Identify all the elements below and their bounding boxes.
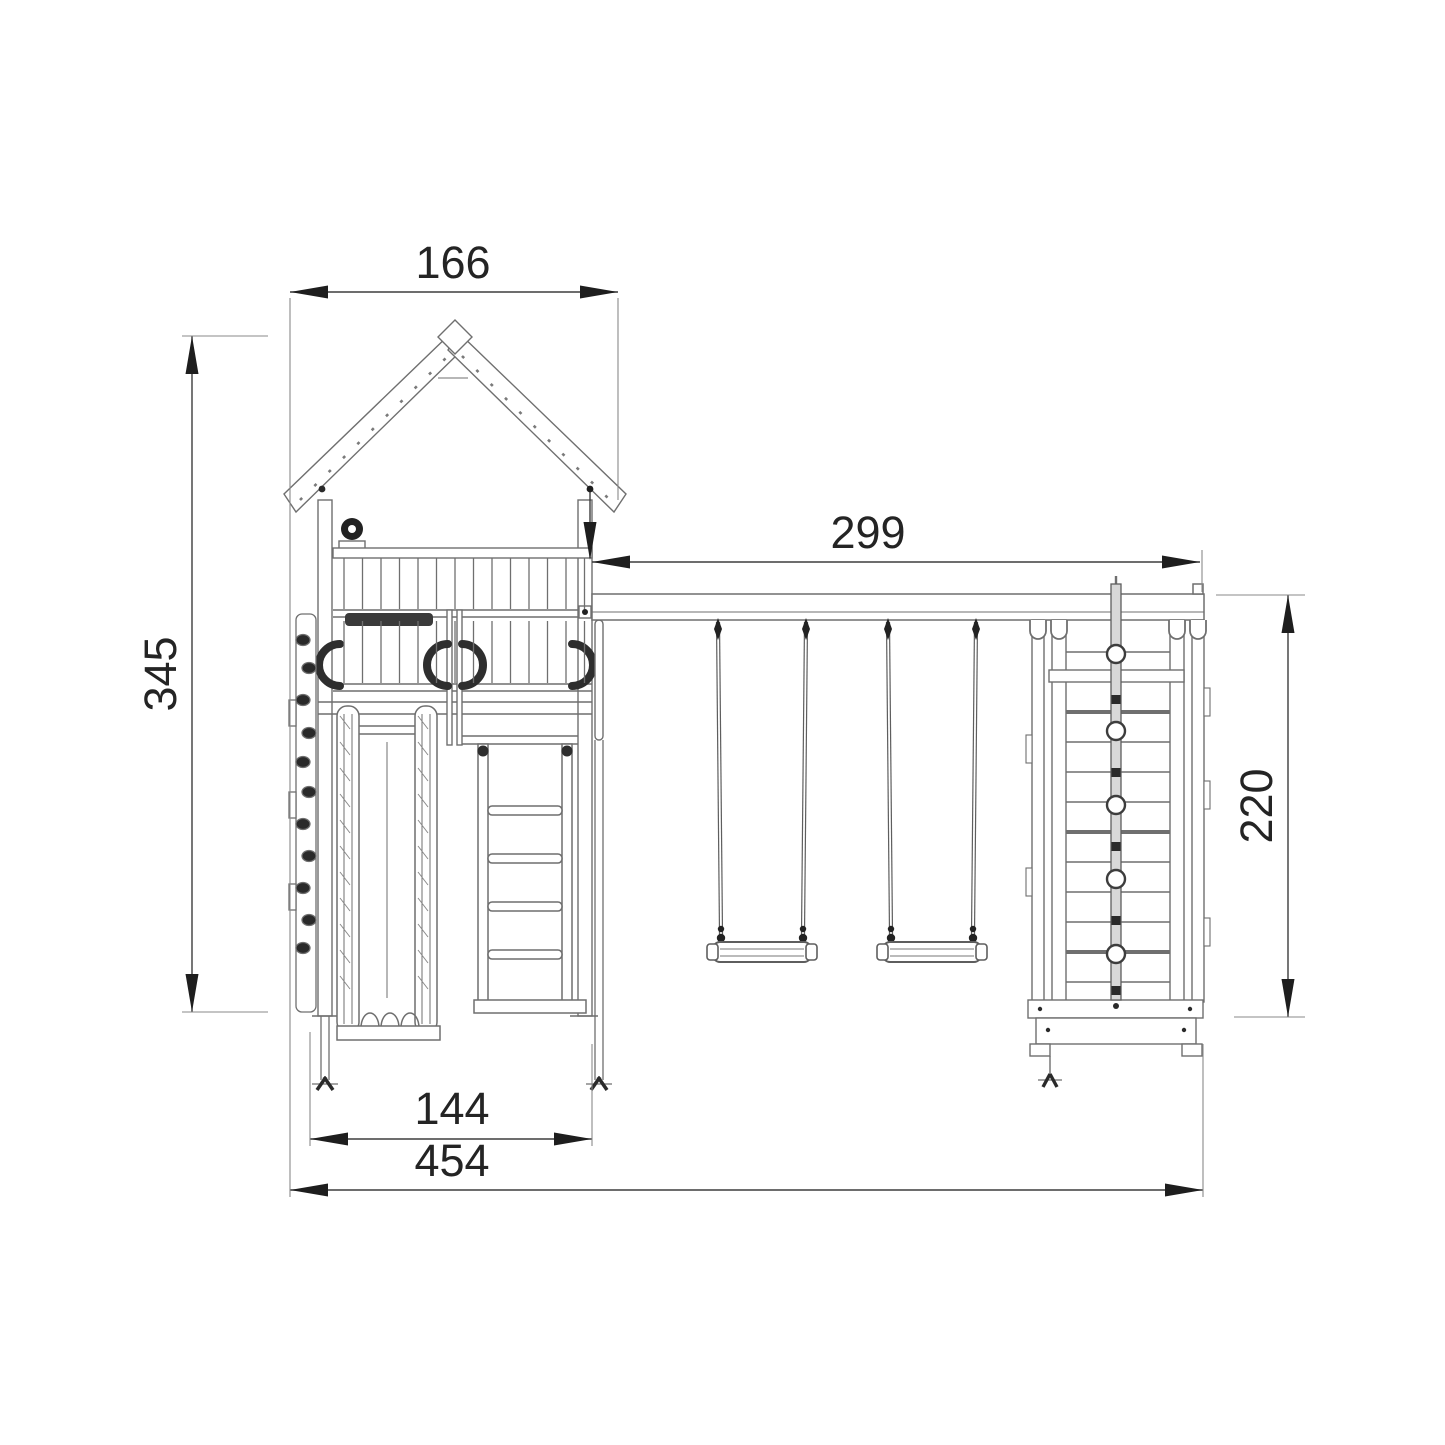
ladder-rail-left [478, 744, 488, 1012]
base-screw [1046, 1028, 1050, 1032]
dim-text-frame-height: 220 [1231, 768, 1282, 843]
base-screw [1188, 1007, 1192, 1011]
roof-bolt [319, 486, 326, 493]
swing-seat [713, 942, 811, 962]
ladder-rung [488, 806, 562, 815]
swing-shackle [888, 926, 894, 932]
swing-seat [883, 942, 981, 962]
drawing-canvas: 166 345 299 220 [0, 0, 1445, 1445]
swing-seat-cap [806, 944, 817, 960]
ref-dot [587, 486, 594, 493]
handrail [333, 548, 592, 558]
dim-text-overall-width: 454 [414, 1135, 489, 1186]
ladder-base-plate [474, 1000, 586, 1013]
center-divider-right [457, 610, 462, 745]
beam-bracket [1051, 620, 1067, 639]
drawing-page: 166 345 299 220 [0, 0, 1445, 1445]
climbing-hold [302, 851, 316, 862]
frame-side-cleat [1204, 688, 1210, 716]
pole-connector [1112, 768, 1121, 777]
beam-bracket [1030, 620, 1046, 639]
beam-bracket [1169, 620, 1185, 639]
swing-seat-cap [976, 944, 987, 960]
swing-shackle [718, 926, 724, 932]
base-center-bolt [1113, 1003, 1119, 1009]
frame-side-cleat [1026, 868, 1032, 896]
frame-foot-left [1030, 1044, 1050, 1056]
swing-shackle [970, 926, 976, 932]
dim-text-roof-width: 166 [415, 237, 490, 288]
frame-side-cleat [1204, 781, 1210, 809]
slide-base-bar [337, 1026, 440, 1040]
center-divider-left [447, 610, 452, 745]
climbing-hold [296, 819, 310, 830]
beam-bracket [1190, 620, 1206, 639]
swing-seat-cap [877, 944, 888, 960]
climbing-hold [302, 663, 316, 674]
swing-shackle [887, 934, 895, 942]
climbing-hold [296, 757, 310, 768]
pole-grip [1107, 870, 1125, 888]
frame-base-lower-board [1036, 1018, 1196, 1044]
dim-text-beam-length: 299 [830, 507, 905, 558]
pole-grip [1107, 945, 1125, 963]
frame-post-outer-right [1192, 620, 1204, 1002]
dim-text-tower-width: 144 [414, 1083, 489, 1134]
pole-grip [1107, 796, 1125, 814]
steering-knob-hub [348, 525, 356, 533]
ladder-rung [488, 854, 562, 863]
climbing-hold [302, 728, 316, 739]
ladder-hook-right [562, 746, 573, 757]
climbing-hold [296, 635, 310, 646]
beam-support-panel [595, 620, 603, 740]
swing-shackle [799, 934, 807, 942]
swing-seat-cap [707, 944, 718, 960]
climbing-hold [296, 883, 310, 894]
pole-connector [1112, 695, 1121, 704]
paper-background [0, 0, 1445, 1445]
base-screw [1038, 1007, 1042, 1011]
frame-side-cleat [1026, 735, 1032, 763]
pole-grip [1107, 645, 1125, 663]
frame-foot-right [1182, 1044, 1202, 1056]
base-screw [1182, 1028, 1186, 1032]
grab-bar [345, 613, 433, 626]
swing-shackle [969, 934, 977, 942]
pole-connector [1112, 986, 1121, 995]
ladder-rung [488, 902, 562, 911]
frame-base-top-board [1028, 1000, 1203, 1018]
ladder-rail-right [562, 744, 572, 1012]
beam-bolt [582, 609, 588, 615]
climbing-hold [302, 915, 316, 926]
pole-grip [1107, 722, 1125, 740]
ladder-hook-left [478, 746, 489, 757]
climbing-hold [296, 943, 310, 954]
swing-shackle [717, 934, 725, 942]
pole-connector [1112, 916, 1121, 925]
swing-shackle [800, 926, 806, 932]
frame-post-outer-left [1032, 620, 1044, 1002]
pole-connector [1112, 842, 1121, 851]
slide-rail-left [337, 706, 359, 1032]
ladder-rung [488, 950, 562, 959]
climbing-hold [296, 695, 310, 706]
dim-text-overall-height: 345 [135, 636, 186, 711]
frame-side-cleat [1204, 918, 1210, 946]
climbing-hold [302, 787, 316, 798]
slide-rail-right [415, 706, 437, 1032]
tower-post-left [318, 500, 332, 1016]
